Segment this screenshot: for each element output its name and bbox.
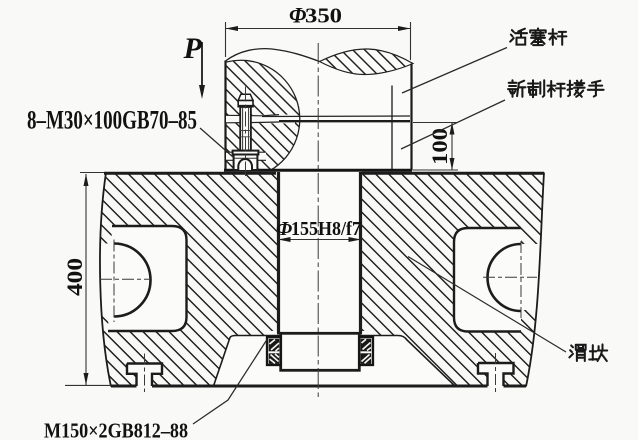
- svg-text:155H8/f7: 155H8/f7: [291, 218, 361, 240]
- svg-text:400: 400: [62, 258, 87, 296]
- svg-text:Φ: Φ: [289, 3, 306, 28]
- svg-text:P: P: [183, 32, 203, 65]
- svg-text:350: 350: [305, 4, 342, 28]
- svg-text:M150×2GB812–88: M150×2GB812–88: [44, 419, 188, 440]
- svg-text:8–M30×100GB70–85: 8–M30×100GB70–85: [27, 106, 197, 135]
- svg-text:Φ: Φ: [276, 218, 292, 240]
- svg-text:100: 100: [427, 128, 452, 165]
